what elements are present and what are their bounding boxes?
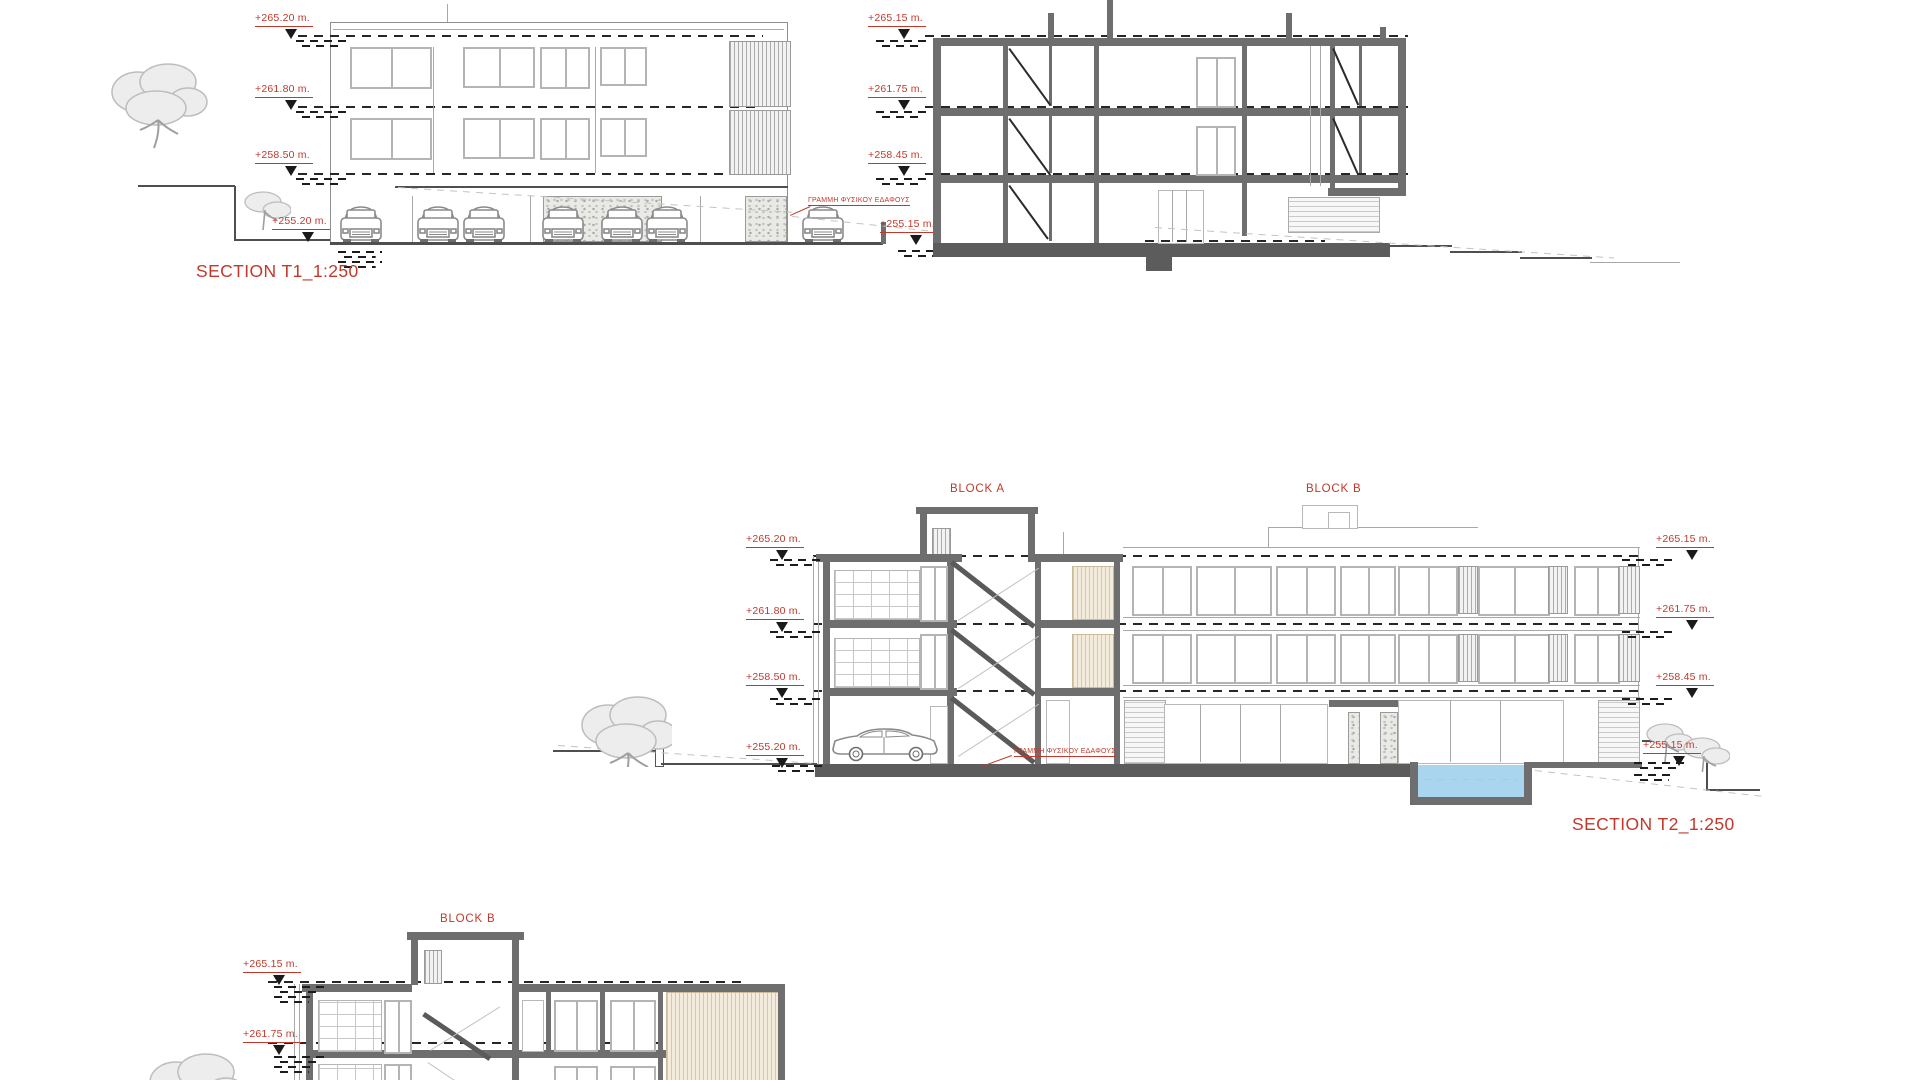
level-dash-marks	[274, 1056, 326, 1065]
interior-wall	[546, 992, 551, 1052]
window	[384, 1064, 412, 1080]
tree-icon	[146, 1050, 240, 1080]
level-dash-marks	[274, 1066, 314, 1075]
interior-wall	[658, 992, 663, 1080]
closet-linework	[318, 1000, 382, 1052]
drawing-sheet: ΓΡΑΜΜΗ ΦΥΣΙΚΟΥ ΕΔΑΦΟΥΣ +265.20 m. +261.8…	[0, 0, 1920, 1080]
window	[610, 1000, 656, 1052]
level-dash-marks	[274, 986, 326, 995]
elevation-label: +265.15 m.	[243, 959, 301, 973]
window	[384, 1000, 412, 1054]
tower-louver-window	[424, 950, 442, 984]
tan-louver-panel	[666, 992, 780, 1080]
elevation-label: +261.75 m.	[243, 1029, 301, 1043]
stair-railing-line	[427, 1062, 487, 1080]
cut-wall	[778, 992, 785, 1080]
block-b-label: BLOCK B	[440, 913, 495, 925]
window	[610, 1066, 656, 1080]
level-triangle-icon	[273, 1045, 285, 1055]
interior-wall	[600, 992, 605, 1052]
closet-linework	[318, 1064, 382, 1080]
window	[554, 1066, 598, 1080]
window	[554, 1000, 598, 1052]
elevation-marker: +265.15 m.	[243, 959, 301, 985]
door-outline	[522, 1000, 544, 1052]
tower-wall	[411, 940, 418, 985]
tower-roof-slab	[407, 932, 524, 940]
elevation-marker: +261.75 m.	[243, 1029, 301, 1055]
section-t3-drawing: BLOCK B	[0, 0, 1920, 1080]
level-triangle-icon	[273, 975, 285, 985]
tower-wall	[512, 940, 519, 1080]
level-dash-marks	[274, 996, 314, 1005]
roof-slab	[519, 984, 785, 992]
